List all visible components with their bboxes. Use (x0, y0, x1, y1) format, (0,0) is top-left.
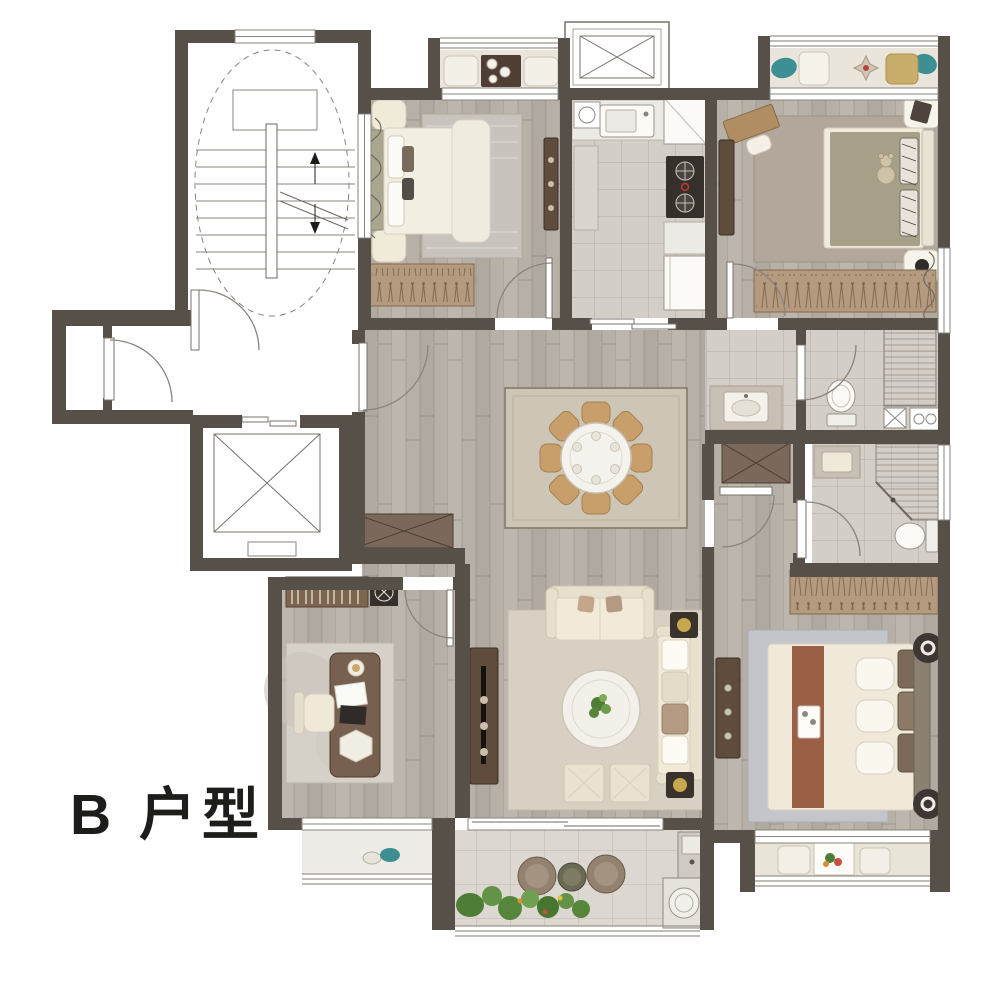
wardrobe-hangers (792, 574, 936, 610)
teddy-ear (889, 154, 894, 159)
teal-slipper (380, 848, 400, 862)
dining-chair (582, 492, 610, 514)
decor-dot (725, 733, 732, 740)
wall (778, 318, 950, 330)
wall (190, 415, 242, 428)
master-headboard (914, 642, 930, 812)
wall (190, 558, 352, 571)
kitchen-cabinet (574, 146, 598, 230)
plant (572, 900, 590, 918)
master-door-leaf (720, 487, 772, 495)
balcony-master (778, 843, 890, 875)
wall (268, 818, 302, 830)
nightstand (372, 230, 406, 262)
wall (432, 818, 455, 930)
sliding-window (468, 818, 663, 830)
plant (521, 890, 539, 908)
elevator-panel (248, 542, 296, 556)
wall (453, 577, 470, 590)
wall (796, 330, 806, 345)
cup (500, 67, 510, 77)
dining-chair (630, 444, 652, 472)
elevator-shaft-top (565, 22, 669, 92)
balcony-study-floor (302, 830, 432, 874)
chair-cushion (525, 864, 549, 888)
pillow (856, 700, 894, 732)
teddy-bear-body (877, 166, 895, 184)
master-tv-console (716, 658, 740, 758)
cup (489, 75, 497, 83)
gas-meter-box (574, 102, 600, 128)
toilet-tank (827, 414, 856, 426)
window (442, 88, 558, 100)
dining-area (505, 388, 687, 528)
counter (664, 222, 706, 254)
bath1-door-leaf (797, 345, 805, 400)
wall (352, 412, 365, 548)
plate (592, 432, 601, 441)
wall (938, 333, 950, 445)
wall (52, 310, 66, 424)
kitchen-slider-leaf (632, 324, 676, 329)
flower (543, 910, 548, 915)
wall (358, 238, 371, 330)
dining-chair (540, 444, 562, 472)
gold-pillow (886, 54, 918, 84)
papers (335, 682, 368, 708)
wall (702, 547, 714, 577)
study-chair-back (294, 692, 304, 734)
wall (930, 830, 950, 892)
table-lamp (677, 618, 691, 632)
wall (793, 444, 805, 503)
balcony-pillow (524, 57, 558, 86)
dining-chair (582, 402, 610, 424)
stair-door-swing (199, 290, 259, 350)
closet-door-swing (110, 340, 172, 402)
window (358, 114, 371, 238)
wall (339, 415, 352, 570)
wall (358, 30, 371, 114)
wall (352, 330, 365, 344)
wall (428, 38, 440, 100)
knob (690, 860, 695, 865)
plate (592, 476, 601, 485)
arrow-up (310, 152, 320, 164)
window (755, 830, 930, 843)
slippers (363, 852, 381, 864)
wall (705, 100, 717, 318)
pillow (388, 136, 404, 178)
pillow (856, 742, 894, 774)
table-lamp (673, 778, 687, 792)
decor-dot (548, 205, 554, 211)
flower (823, 861, 829, 867)
accent-pillow (402, 178, 414, 200)
decor-plate (480, 748, 488, 756)
bath2-door-leaf (797, 500, 806, 558)
wall (938, 520, 950, 832)
balcony-top-left (444, 55, 558, 87)
fur-throw (452, 120, 490, 242)
throw-pillow (577, 595, 595, 613)
pillow (388, 182, 404, 226)
wall (190, 415, 203, 570)
table-top (563, 868, 581, 886)
wall (758, 36, 770, 100)
railing-master (755, 876, 930, 886)
elevator-hall (214, 417, 320, 556)
wall (268, 577, 282, 830)
flower (834, 858, 842, 866)
shower-handle (891, 498, 896, 503)
study-chair (304, 694, 334, 732)
balcony-pillow (778, 846, 810, 874)
window (938, 248, 950, 333)
flower (558, 896, 563, 901)
pillow (662, 704, 688, 734)
wall (52, 410, 193, 424)
plant-leaf (589, 708, 599, 718)
closet-door-leaf (104, 338, 114, 400)
nightstand (372, 100, 406, 130)
wardrobe-hangers (372, 268, 472, 302)
arrow-down (310, 222, 320, 234)
kitchen-slider-leaf (590, 319, 634, 324)
wall (358, 318, 495, 330)
balcony-pillow (799, 52, 829, 85)
tray-cup (810, 719, 816, 725)
window (938, 445, 950, 520)
cup (487, 59, 497, 69)
wall (352, 548, 465, 564)
sink-bowl (606, 110, 636, 132)
elevator-door-leaf (242, 417, 268, 422)
wall (790, 563, 938, 577)
dresser-tv-2 (719, 140, 734, 235)
stair-door-leaf (191, 290, 199, 350)
chair-cushion (594, 862, 618, 886)
wall (558, 88, 770, 100)
teddy-ear (879, 154, 884, 159)
door-post (103, 322, 112, 338)
wall (175, 30, 188, 322)
plate (611, 443, 620, 452)
basin-bowl (732, 400, 760, 416)
stairwell (195, 50, 355, 316)
wall (740, 830, 755, 892)
plant (537, 896, 559, 918)
decor-plate (480, 696, 488, 704)
tray-cup (802, 711, 808, 717)
railing-study (302, 874, 432, 884)
floor-plan-page: B 户型 (0, 0, 1000, 988)
flower (518, 899, 523, 904)
wall (668, 318, 727, 330)
bed-tray (798, 706, 820, 738)
pillow (662, 736, 688, 764)
wall (702, 577, 714, 830)
wall (560, 100, 572, 318)
cooktop-knob (682, 184, 689, 191)
pillow (662, 672, 688, 702)
plant-leaf (599, 694, 607, 702)
plant-leaf (601, 704, 611, 714)
faucet (744, 394, 748, 398)
window (770, 88, 938, 100)
stair-rail (266, 124, 277, 278)
plant (558, 893, 574, 909)
plate (573, 465, 582, 474)
entry-door-leaf (359, 343, 367, 411)
wall (300, 415, 352, 428)
wall (938, 36, 950, 100)
wall (938, 88, 950, 248)
plant (482, 886, 502, 906)
plate (573, 443, 582, 452)
washer-drum (669, 888, 699, 918)
sink-bowl (682, 836, 703, 854)
elevator-door-leaf (270, 421, 296, 426)
pillow (662, 640, 688, 670)
window (302, 818, 432, 830)
floor-plan-b-svg: B 户型 (0, 0, 1000, 988)
toilet-tank (926, 520, 938, 552)
desk-lamp-shade (352, 664, 360, 672)
wall (700, 818, 714, 930)
wall (268, 577, 403, 590)
laptop (339, 705, 366, 725)
accent-pillow (402, 146, 414, 172)
shower-area (884, 326, 936, 406)
wall (558, 38, 570, 100)
wall (552, 318, 592, 330)
throw-pillow (605, 595, 623, 613)
wall (705, 430, 950, 444)
window (235, 30, 315, 43)
railing-top-right (770, 36, 938, 46)
balcony-pillow (444, 56, 478, 86)
wardrobe-hangers (756, 274, 934, 308)
wall (455, 564, 470, 818)
decor-dot (863, 65, 869, 71)
bedroom1-door-leaf (546, 258, 552, 318)
bed2-headboard (922, 130, 934, 246)
toilet-bowl (895, 523, 925, 549)
wall (702, 444, 714, 500)
decor-dot (725, 709, 732, 716)
bedroom2-door-leaf (727, 262, 733, 318)
plan-title: B 户型 (70, 783, 265, 847)
decor-dot (725, 685, 732, 692)
plant (456, 893, 484, 917)
decor-plate (480, 722, 488, 730)
balcony-pillow (860, 848, 890, 874)
decor-dot (548, 181, 554, 187)
decor-dot (548, 157, 554, 163)
wall (52, 310, 193, 326)
wall (796, 400, 806, 430)
pillow (856, 658, 894, 690)
railing-top-left (440, 38, 558, 48)
plate (611, 465, 620, 474)
faucet (644, 112, 649, 117)
vanity-basin (822, 452, 852, 472)
